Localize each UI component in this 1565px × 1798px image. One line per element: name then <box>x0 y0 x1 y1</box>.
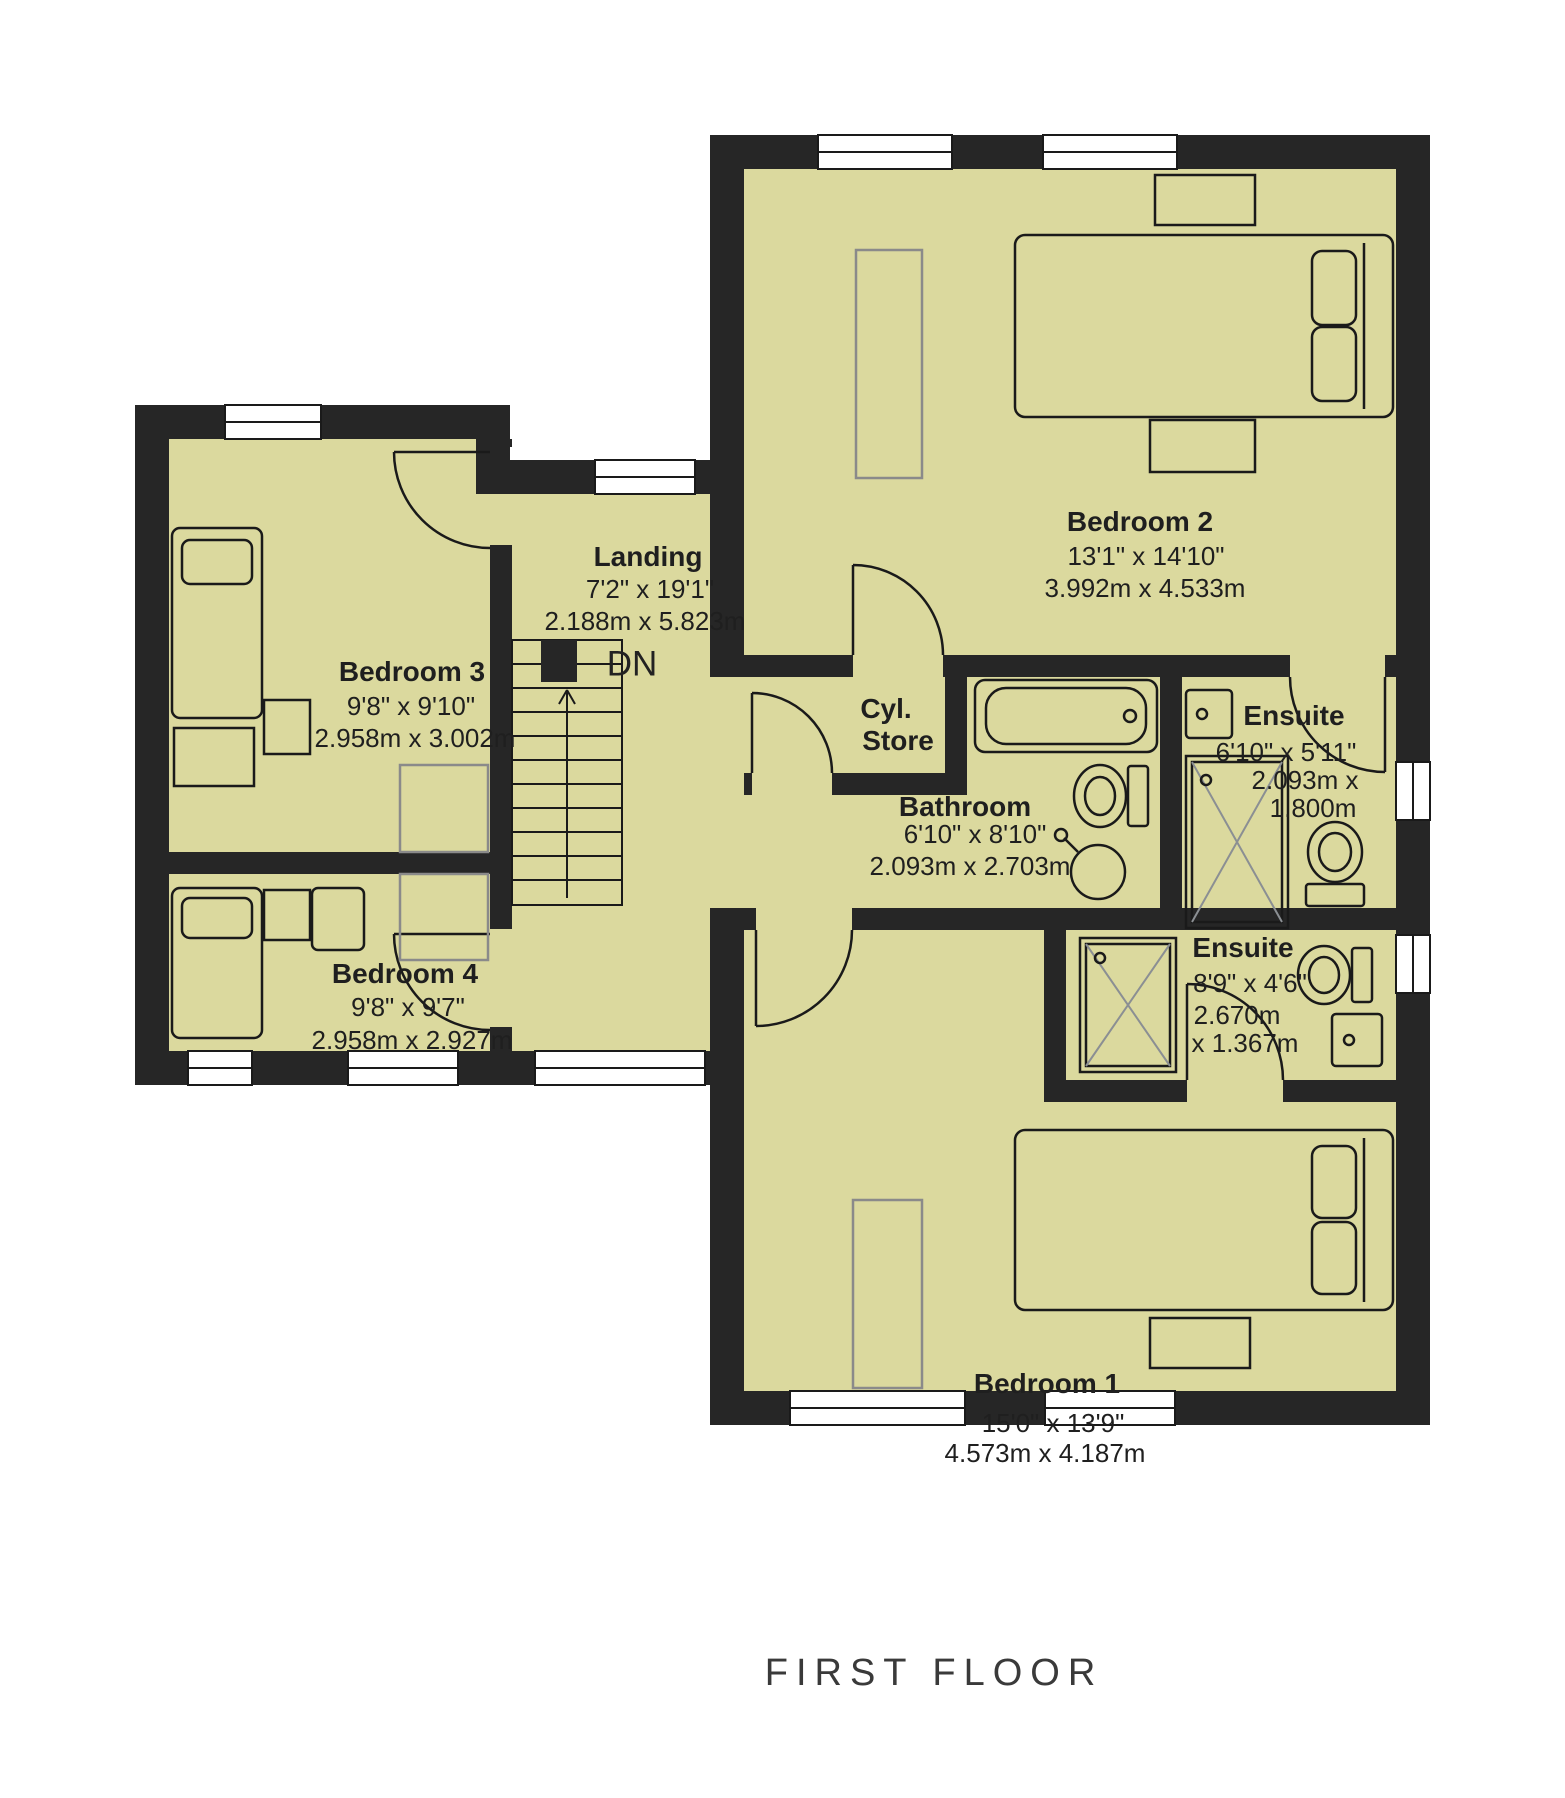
window <box>348 1051 458 1085</box>
floor-plan: Bedroom 2 13'1" x 14'10" 3.992m x 4.533m… <box>0 0 1565 1798</box>
room-label-ensuite-top-metric2: 1.800m <box>1270 795 1357 821</box>
room-label-ensuite-bottom-metric1: 2.670m <box>1194 1002 1281 1028</box>
room-label-landing-metric: 2.188m x 5.823m <box>545 608 746 634</box>
room-label-bedroom4-name: Bedroom 4 <box>332 960 478 988</box>
window <box>595 460 695 494</box>
floor-title: FIRST FLOOR <box>765 1654 1104 1692</box>
room-label-bedroom2-name: Bedroom 2 <box>1067 508 1213 536</box>
window <box>225 405 321 439</box>
room-label-bathroom-metric: 2.093m x 2.703m <box>870 853 1071 879</box>
floor-plan-drawing <box>0 0 1565 1798</box>
stairs-down-label: DN <box>607 647 658 682</box>
room-label-bedroom2-metric: 3.992m x 4.533m <box>1045 575 1246 601</box>
room-label-bedroom4-metric: 2.958m x 2.927m <box>312 1027 513 1053</box>
room-label-bathroom-imperial: 6'10" x 8'10" <box>904 821 1047 847</box>
room-label-ensuite-top-imperial: 6'10" x 5'11" <box>1216 739 1357 765</box>
room-label-bedroom1-name: Bedroom 1 <box>974 1370 1120 1398</box>
room-label-ensuite-bottom-imperial: 8'9" x 4'6" <box>1193 970 1307 996</box>
window <box>818 135 952 169</box>
room-label-bedroom3-name: Bedroom 3 <box>339 658 485 686</box>
room-label-ensuite-bottom-metric2: x 1.367m <box>1192 1030 1299 1056</box>
room-label-ensuite-top-name: Ensuite <box>1243 702 1344 730</box>
room-label-ensuite-top-metric1: 2.093m x <box>1252 767 1359 793</box>
room-label-bathroom-name: Bathroom <box>899 793 1031 821</box>
room-label-bedroom4-imperial: 9'8" x 9'7" <box>351 994 465 1020</box>
room-label-landing-name: Landing <box>594 543 703 571</box>
room-label-cyl-store-line2: Store <box>862 727 934 755</box>
window <box>1043 135 1177 169</box>
room-label-bedroom3-metric: 2.958m x 3.002m <box>315 725 516 751</box>
room-label-bedroom3-imperial: 9'8" x 9'10" <box>347 693 475 719</box>
room-label-cyl-store-line1: Cyl. <box>860 695 911 723</box>
room-label-landing-imperial: 7'2" x 19'1" <box>586 576 714 602</box>
room-label-bedroom1-metric: 4.573m x 4.187m <box>945 1440 1146 1466</box>
window <box>1396 762 1430 820</box>
window <box>535 1051 705 1085</box>
room-label-bedroom1-imperial: 15'0" x 13'9" <box>982 1410 1125 1436</box>
window <box>790 1391 965 1425</box>
window <box>188 1051 252 1085</box>
room-label-ensuite-bottom-name: Ensuite <box>1192 934 1293 962</box>
window <box>1396 935 1430 993</box>
room-label-bedroom2-imperial: 13'1" x 14'10" <box>1067 543 1224 569</box>
